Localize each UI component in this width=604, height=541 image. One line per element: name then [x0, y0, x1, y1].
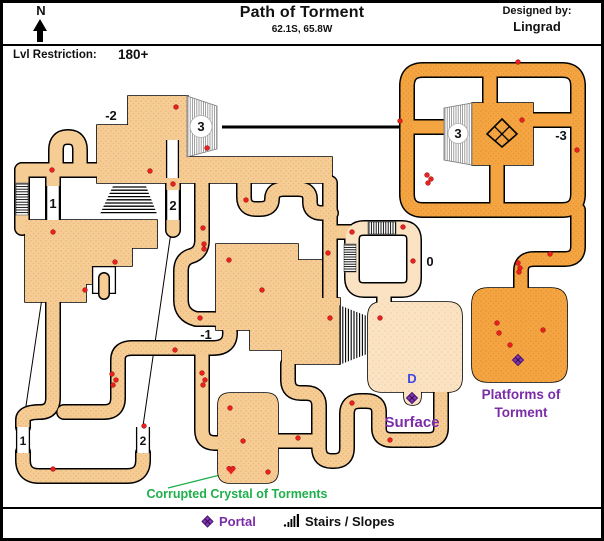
monster-dot: [378, 316, 383, 321]
portal-legend-label: Portal: [219, 514, 256, 529]
stairs-hatch: [368, 220, 396, 236]
monster-dot: [227, 258, 232, 263]
designed-by-label: Designed by:: [478, 5, 596, 17]
map-label: 0: [426, 254, 433, 269]
monster-dot: [497, 331, 502, 336]
monster-dot: [114, 378, 119, 383]
monster-dot: [244, 198, 249, 203]
monster-dot: [111, 383, 116, 388]
monster-dot: [50, 168, 55, 173]
monster-dot: [173, 348, 178, 353]
dungeon-map: -233-3120-112DSurfacePlatforms ofTorment…: [0, 0, 604, 541]
designer-name: Lingrad: [478, 19, 596, 34]
monster-dot: [401, 225, 406, 230]
map-label: -1: [200, 327, 212, 342]
monster-dot: [110, 372, 115, 377]
map-label: -3: [555, 128, 567, 143]
monster-dot: [203, 378, 208, 383]
monster-dot: [51, 230, 56, 235]
level-restriction-label: Lvl Restriction:: [13, 49, 97, 61]
stairs-bg: [368, 222, 396, 234]
map-label: Platforms of: [482, 387, 561, 402]
map-coordinates: 62.1S, 65.8W: [152, 24, 452, 35]
monster-dot: [398, 119, 403, 124]
monster-dot: [202, 247, 207, 252]
monster-dot: [260, 288, 265, 293]
stairs-legend-label: Stairs / Slopes: [305, 514, 395, 529]
monster-dot: [425, 173, 430, 178]
monster-dot: [508, 343, 513, 348]
monster-dot: [142, 424, 147, 429]
map-label: 3: [454, 126, 461, 141]
stairs-hatch: [14, 183, 30, 215]
monster-dot: [388, 438, 393, 443]
stairs-hatch: [342, 244, 358, 272]
monster-dot: [201, 226, 206, 231]
monster-dot: [541, 328, 546, 333]
level-restriction-value: 180+: [118, 47, 148, 62]
label-gap: [166, 140, 179, 178]
monster-dot: [426, 181, 431, 186]
map-label: 1: [20, 434, 27, 448]
map-label: 3: [197, 119, 204, 134]
map-label: Torment: [495, 405, 549, 420]
map-label: -2: [105, 108, 117, 123]
monster-dot: [516, 60, 521, 65]
map-label: Corrupted Crystal of Torments: [146, 487, 327, 501]
map-page: -233-3120-112DSurfacePlatforms ofTorment…: [0, 0, 604, 541]
monster-dot: [148, 169, 153, 174]
monster-dot: [495, 321, 500, 326]
map-label: 2: [140, 434, 147, 448]
monster-dot: [266, 470, 271, 475]
monster-dot: [228, 406, 233, 411]
monster-dot: [516, 261, 521, 266]
map-label: 2: [169, 198, 176, 213]
monster-dot: [83, 288, 88, 293]
gap-fill: [166, 140, 179, 178]
monster-dot: [326, 251, 331, 256]
monster-dot: [350, 401, 355, 406]
stairs-slopes-icon: [283, 512, 301, 530]
portal-icon: [200, 514, 215, 529]
page-title: Path of Torment: [152, 4, 452, 22]
monster-dot: [517, 270, 522, 275]
monster-dot: [174, 105, 179, 110]
compass-north-label: N: [32, 3, 50, 18]
monster-dot: [171, 182, 176, 187]
monster-dot: [411, 259, 416, 264]
monster-dot: [429, 177, 434, 182]
monster-dot: [113, 260, 118, 265]
monster-dot: [51, 467, 56, 472]
monster-dot: [205, 146, 210, 151]
monster-dot: [202, 242, 207, 247]
monster-dot: [575, 148, 580, 153]
monster-dot: [328, 316, 333, 321]
monster-dot: [520, 118, 525, 123]
map-label: 1: [49, 196, 56, 211]
stairs-bg: [344, 244, 356, 272]
map-label: Surface: [384, 414, 439, 431]
monster-dot: [296, 436, 301, 441]
monster-dot: [350, 230, 355, 235]
monster-dot: [198, 316, 203, 321]
map-label: D: [407, 371, 416, 386]
monster-dot: [241, 439, 246, 444]
monster-dot: [201, 383, 206, 388]
monster-dot: [200, 371, 205, 376]
monster-dot: [548, 252, 553, 257]
